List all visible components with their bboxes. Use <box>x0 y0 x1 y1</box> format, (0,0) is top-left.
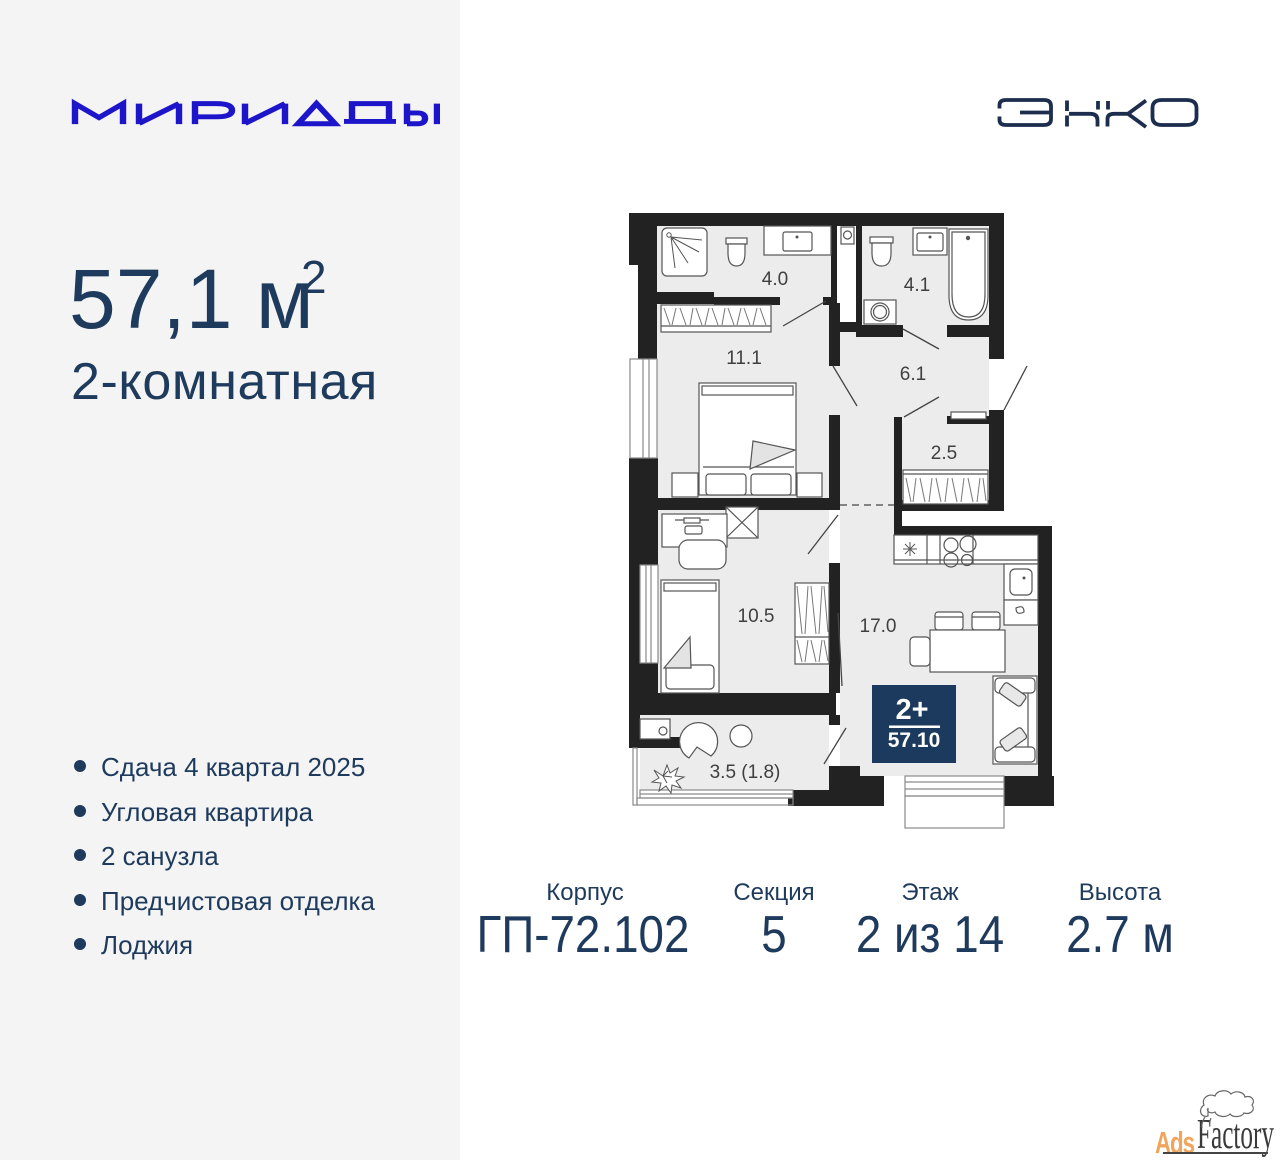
svg-text:10.5: 10.5 <box>738 606 775 627</box>
svg-text:4.0: 4.0 <box>762 269 788 290</box>
svg-text:11.1: 11.1 <box>726 348 762 369</box>
svg-text:2+: 2+ <box>895 694 928 726</box>
svg-text:4.1: 4.1 <box>904 275 930 296</box>
svg-text:17.0: 17.0 <box>860 616 897 637</box>
svg-text:2.5: 2.5 <box>931 443 957 464</box>
svg-text:6.1: 6.1 <box>900 364 926 385</box>
svg-text:3.5 (1.8): 3.5 (1.8) <box>710 762 781 783</box>
svg-text:57.10: 57.10 <box>888 729 941 752</box>
